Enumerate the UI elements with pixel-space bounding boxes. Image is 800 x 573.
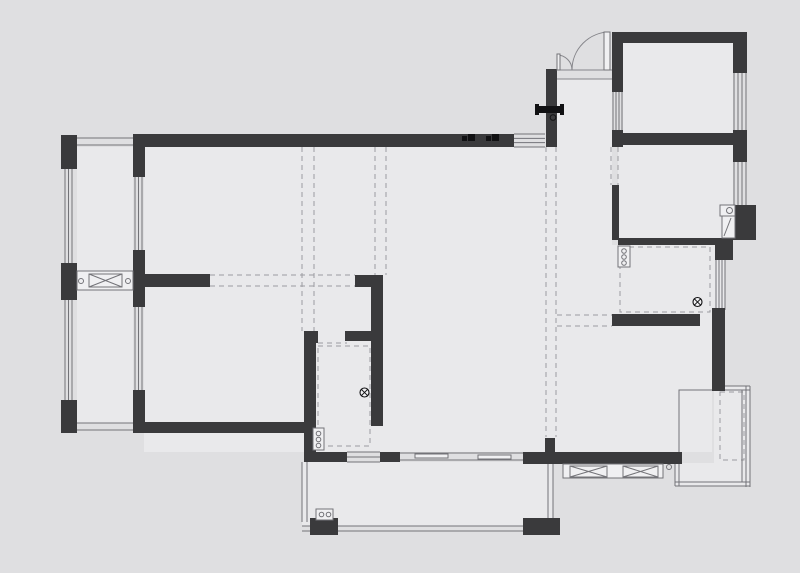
pipe-valve-mark — [538, 106, 563, 113]
wall-segment — [523, 452, 682, 464]
room-floor — [618, 145, 733, 238]
wall-segment — [304, 452, 347, 462]
room-floor — [557, 79, 612, 147]
pipe-valve-nub — [560, 104, 564, 115]
wall-segment — [371, 341, 383, 426]
wall-segment — [618, 238, 715, 245]
wall-segment — [733, 130, 747, 162]
room-floor — [612, 326, 712, 452]
wall-segment — [715, 238, 733, 260]
wall-segment — [733, 205, 756, 240]
wall-segment — [380, 452, 400, 462]
wall-segment — [144, 422, 304, 433]
room-floor — [623, 43, 733, 133]
wall-segment — [61, 263, 77, 300]
wall-segment — [371, 275, 383, 341]
floor-plan — [0, 0, 800, 573]
wall-segment — [133, 390, 145, 433]
wall-segment — [310, 518, 338, 535]
wall-segment — [712, 308, 725, 391]
basin-body — [722, 216, 735, 238]
door-leaf — [604, 32, 610, 70]
room-floor — [714, 386, 750, 486]
wall-segment — [612, 32, 747, 43]
wall-segment — [345, 331, 371, 341]
room-floor — [302, 462, 553, 526]
floor-plan-canvas — [0, 0, 800, 573]
wall-segment — [523, 518, 560, 535]
wall-mark-glyph — [468, 134, 475, 141]
wall-segment — [612, 133, 747, 145]
wall-segment — [133, 250, 145, 307]
wall-segment — [133, 147, 145, 177]
wall-segment — [61, 135, 77, 169]
wall-segment — [612, 185, 619, 240]
wall-segment — [61, 400, 77, 433]
wall-mark-glyph — [486, 136, 491, 141]
sliding-door-panel — [415, 454, 448, 458]
wall-mark-glyph — [462, 136, 467, 141]
pipe-valve-nub — [535, 104, 539, 115]
wall-segment — [545, 438, 555, 452]
wall-mark-glyph — [492, 134, 499, 141]
wall-segment — [612, 314, 700, 326]
wall-segment — [733, 32, 747, 73]
wall-segment — [133, 134, 514, 147]
room-floor — [144, 147, 546, 452]
anchor-circle — [667, 465, 672, 470]
door-leaf — [557, 54, 560, 70]
wall-segment — [612, 32, 623, 92]
wall-segment — [144, 274, 210, 287]
sliding-door-panel — [478, 455, 511, 459]
